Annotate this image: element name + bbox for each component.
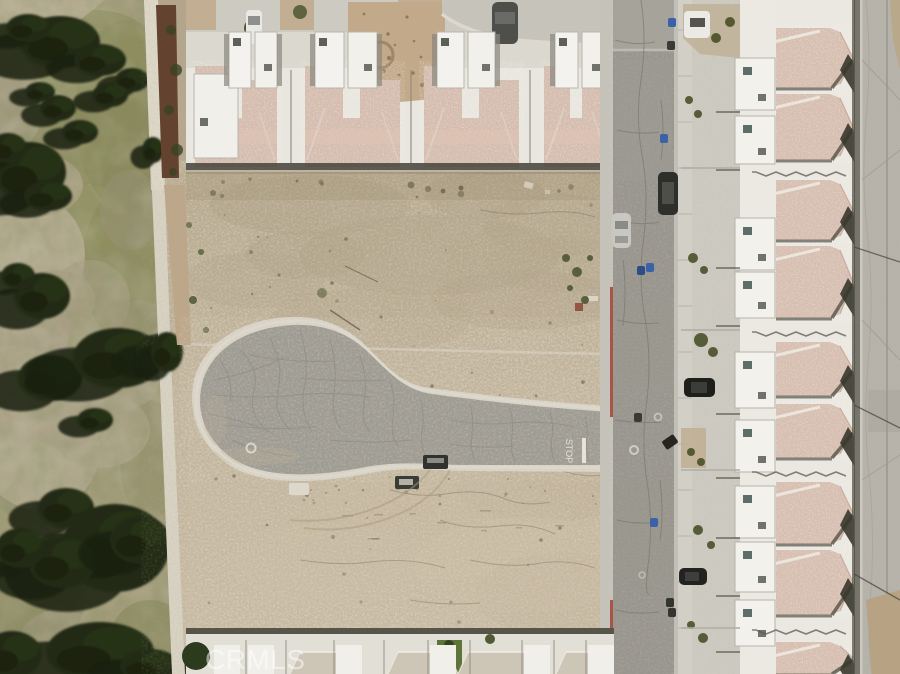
- svg-text:STOP: STOP: [564, 439, 574, 463]
- svg-text:CRMLS: CRMLS: [205, 644, 306, 674]
